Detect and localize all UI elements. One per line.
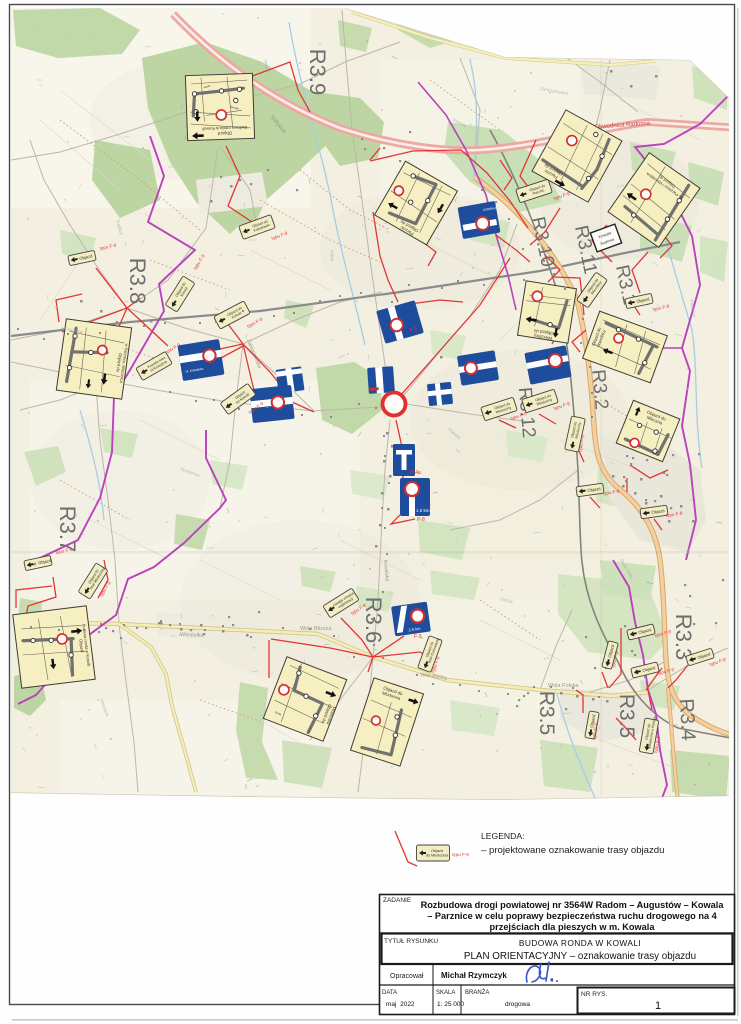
svg-text:Objazd: Objazd	[431, 849, 443, 853]
svg-text:P-8: P-8	[417, 517, 425, 523]
svg-text:do Mlodocina: do Mlodocina	[426, 854, 449, 858]
svg-text:BUDOWA RONDA W KOWALI: BUDOWA RONDA W KOWALI	[519, 938, 641, 948]
svg-text:1: 25 000: 1: 25 000	[437, 1001, 464, 1008]
svg-text:R3.4: R3.4	[675, 698, 699, 741]
svg-text:– projektowane oznakowanie tra: – projektowane oznakowanie trasy objazdu	[481, 845, 664, 856]
svg-text:1: 1	[655, 1000, 661, 1012]
svg-text:Polna: Polna	[329, 250, 335, 262]
svg-text:1.6 km: 1.6 km	[416, 508, 430, 513]
svg-text:TYTUŁ RYSUNKU: TYTUŁ RYSUNKU	[384, 938, 438, 945]
svg-text:Wiesiolka: Wiesiolka	[180, 632, 205, 639]
svg-text:maj 2022: maj 2022	[386, 1001, 415, 1008]
svg-text:PLAN ORIENTACYJNY – oznakow: PLAN ORIENTACYJNY – oznakowanie trasy ob…	[464, 951, 696, 962]
svg-text:Michał Rzymczyk: Michał Rzymczyk	[441, 971, 507, 980]
svg-text:R3.9: R3.9	[305, 49, 330, 95]
svg-text:R3.2: R3.2	[587, 369, 611, 411]
svg-text:przejściach dla pieszych w m.: przejściach dla pieszych w m. Kowala	[490, 922, 656, 932]
svg-text:R3.8: R3.8	[125, 258, 150, 304]
svg-text:Wola Polska: Wola Polska	[548, 683, 579, 689]
svg-text:typu F-9: typu F-9	[452, 852, 469, 857]
svg-text:Opracował: Opracował	[390, 973, 424, 980]
svg-text:LEGENDA:: LEGENDA:	[481, 831, 524, 841]
svg-text:BRANŻA: BRANŻA	[465, 989, 489, 996]
svg-text:Wola Blizsza: Wola Blizsza	[300, 626, 332, 632]
svg-text:Rozbudowa drogi powiatowej nr: Rozbudowa drogi powiatowej nr 3564W Rado…	[421, 900, 725, 910]
svg-text:R3.5: R3.5	[615, 694, 638, 738]
svg-text:D-4a: D-4a	[410, 470, 421, 476]
svg-text:drogowa: drogowa	[505, 1001, 530, 1008]
svg-text:DATA: DATA	[382, 990, 397, 996]
svg-text:SKALA: SKALA	[436, 990, 455, 996]
svg-text:ZADANIE: ZADANIE	[383, 897, 412, 904]
svg-text:R3.5: R3.5	[535, 691, 558, 735]
svg-text:NR RYS.: NR RYS.	[581, 991, 607, 998]
svg-text:– Parznice w celu poprawy bezp: – Parznice w celu poprawy bezpieczeństwa…	[427, 911, 717, 921]
svg-text:R3.3: R3.3	[671, 614, 696, 660]
svg-text:F-9: F-9	[414, 634, 422, 640]
svg-text:R3.7: R3.7	[55, 506, 80, 552]
